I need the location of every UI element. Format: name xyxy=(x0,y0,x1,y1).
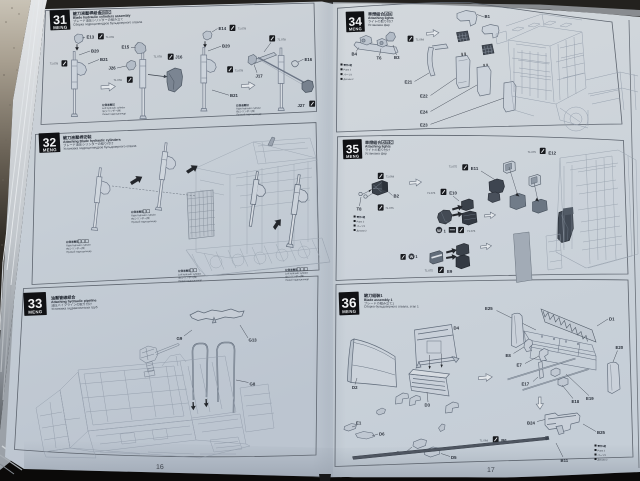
svg-text:W: W xyxy=(410,255,414,259)
svg-text:D6: D6 xyxy=(379,431,385,436)
svg-text:B25: B25 xyxy=(597,430,605,435)
svg-text:D4: D4 xyxy=(454,326,460,331)
svg-text:Parts 2: Parts 2 xyxy=(598,449,606,452)
svg-text:MENG: MENG xyxy=(28,309,43,315)
svg-text:B3: B3 xyxy=(394,55,400,60)
svg-text:E15: E15 xyxy=(122,44,130,49)
svg-text:Parts 2: Parts 2 xyxy=(344,69,352,72)
svg-text:71.078: 71.078 xyxy=(114,79,123,82)
svg-text:B21: B21 xyxy=(100,57,108,62)
svg-text:J27: J27 xyxy=(298,103,306,108)
svg-text:E12: E12 xyxy=(548,150,556,155)
svg-text:MENG: MENG xyxy=(342,309,357,315)
svg-text:B4: B4 xyxy=(352,51,358,56)
svg-text:E21: E21 xyxy=(405,80,413,85)
svg-text:Сборка бульдозерного отвала, э: Сборка бульдозерного отвала, этап 1 xyxy=(364,305,419,309)
svg-text:71.078: 71.078 xyxy=(235,69,244,72)
svg-text:71.075: 71.075 xyxy=(385,207,394,210)
svg-text:71.075: 71.075 xyxy=(427,192,436,195)
svg-text:E24: E24 xyxy=(420,110,428,115)
svg-text:D1: D1 xyxy=(609,316,615,321)
svg-text:MENG: MENG xyxy=(53,25,68,31)
svg-text:MENG: MENG xyxy=(346,154,359,159)
svg-text:71.078: 71.078 xyxy=(277,38,286,41)
svg-text:D3: D3 xyxy=(425,403,431,408)
svg-text:E1: E1 xyxy=(356,420,362,425)
svg-text:71.075: 71.075 xyxy=(467,230,476,233)
svg-text:71.064: 71.064 xyxy=(416,39,425,42)
svg-text:パーツ2: パーツ2 xyxy=(344,73,353,76)
svg-text:E17: E17 xyxy=(522,381,530,386)
svg-text:B20: B20 xyxy=(91,48,99,53)
svg-text:MENG: MENG xyxy=(349,26,362,31)
svg-text:71.075: 71.075 xyxy=(528,151,537,154)
svg-text:J16: J16 xyxy=(175,55,183,60)
svg-text:E8: E8 xyxy=(506,353,512,358)
svg-text:J17: J17 xyxy=(256,73,264,78)
svg-text:71.064: 71.064 xyxy=(386,176,395,179)
svg-text:E20: E20 xyxy=(616,345,624,350)
svg-text:E10: E10 xyxy=(449,191,457,196)
svg-text:B1: B1 xyxy=(485,14,491,19)
svg-text:B21: B21 xyxy=(230,93,238,98)
svg-text:71.064: 71.064 xyxy=(480,439,489,442)
svg-text:E7: E7 xyxy=(517,363,523,368)
svg-text:E19: E19 xyxy=(586,396,594,401)
svg-text:D2: D2 xyxy=(352,385,358,390)
svg-text:71.075: 71.075 xyxy=(425,269,434,272)
svg-text:E11: E11 xyxy=(471,166,479,171)
svg-text:71.078: 71.078 xyxy=(154,56,163,59)
svg-text:Установка фар: Установка фар xyxy=(368,23,390,27)
svg-text:B20: B20 xyxy=(222,44,230,49)
svg-text:E23: E23 xyxy=(420,122,428,127)
svg-text:Детали 2: Детали 2 xyxy=(344,78,355,81)
svg-text:E16: E16 xyxy=(305,57,313,62)
svg-text:パーツ2: パーツ2 xyxy=(598,454,607,457)
svg-text:17: 17 xyxy=(487,467,495,474)
svg-text:71.078: 71.078 xyxy=(238,28,247,31)
svg-text:B11: B11 xyxy=(561,458,569,463)
svg-text:E13: E13 xyxy=(87,35,95,40)
svg-text:Детали 2: Детали 2 xyxy=(598,458,609,461)
svg-text:零件5組: 零件5組 xyxy=(597,444,607,448)
svg-text:16: 16 xyxy=(156,464,164,471)
svg-text:零件2組: 零件2組 xyxy=(343,63,353,67)
svg-text:71.078: 71.078 xyxy=(106,36,115,39)
svg-text:B24: B24 xyxy=(527,420,535,425)
svg-text:Parts 2: Parts 2 xyxy=(357,220,365,223)
svg-text:E25: E25 xyxy=(485,306,493,311)
svg-text:71.078: 71.078 xyxy=(50,62,59,65)
svg-text:E9: E9 xyxy=(447,269,453,274)
svg-text:E14: E14 xyxy=(219,26,227,31)
svg-text:J26: J26 xyxy=(109,65,117,70)
svg-text:パーツ2: パーツ2 xyxy=(357,225,366,228)
svg-text:W: W xyxy=(437,228,441,233)
svg-text:零件2組: 零件2組 xyxy=(356,215,366,219)
svg-text:71.075: 71.075 xyxy=(449,166,458,169)
svg-text:MENG: MENG xyxy=(43,147,58,153)
svg-text:D5: D5 xyxy=(451,455,457,460)
svg-text:G9: G9 xyxy=(177,336,183,341)
svg-text:G13: G13 xyxy=(249,338,258,343)
svg-text:E22: E22 xyxy=(420,94,428,99)
svg-text:T6: T6 xyxy=(377,55,383,60)
svg-text:T8: T8 xyxy=(357,206,363,211)
svg-text:Детали 2: Детали 2 xyxy=(357,229,368,232)
svg-text:B2: B2 xyxy=(394,193,400,198)
svg-text:Установка фар: Установка фар xyxy=(365,151,387,155)
svg-text:E18: E18 xyxy=(572,399,580,404)
